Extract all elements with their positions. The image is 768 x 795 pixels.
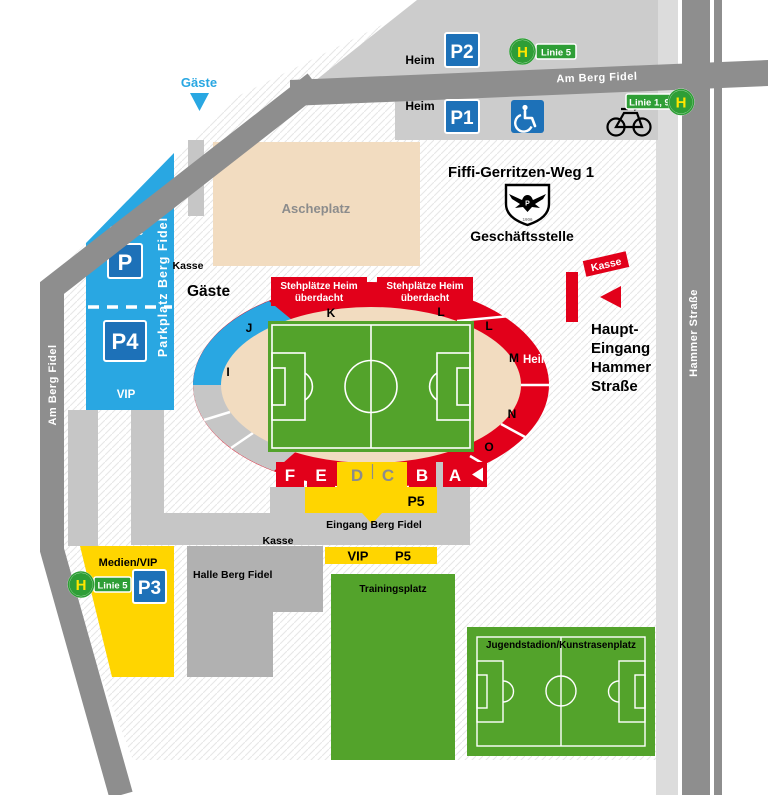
stand-apron-left	[270, 487, 305, 513]
main-entrance-line2: Eingang	[591, 340, 650, 357]
linie5-south-label: Linie 5	[97, 581, 128, 592]
hammer-strasse-lane	[714, 0, 722, 795]
block-f-label: F	[285, 466, 295, 485]
crest-letter: P	[525, 201, 530, 208]
guest-route-label: Gäste	[181, 75, 217, 90]
section-l-corner: L	[485, 319, 492, 333]
vip-p5-area: VIP P5	[325, 547, 437, 564]
h-stop-letter: H	[517, 44, 528, 61]
jugendstadion-label: Jugendstadion/Kunstrasenplatz	[486, 640, 636, 651]
section-n: N	[508, 407, 517, 421]
section-j: J	[246, 321, 253, 335]
block-b-label: B	[416, 466, 428, 485]
eingang-berg-fidel-label: Eingang Berg Fidel	[326, 519, 422, 531]
office-name-label: Geschäftsstelle	[470, 228, 574, 244]
hammer-strasse-label: Hammer Straße	[688, 289, 700, 377]
block-gap	[436, 462, 443, 487]
crest-year: 1906	[522, 217, 533, 222]
linie19-label: Linie 1, 9	[629, 98, 670, 109]
block-d-label: D	[351, 466, 363, 485]
terrace-label-line2: überdacht	[295, 293, 344, 304]
am-berg-fidel-label-west: Am Berg Fidel	[47, 344, 59, 425]
h-stop-letter: H	[676, 95, 687, 112]
kasse-west-label: Kasse	[173, 260, 204, 272]
parking-p1-sign-label: P1	[450, 108, 474, 129]
linie5-north-label: Linie 5	[541, 48, 572, 59]
p1-heim-label: Heim	[405, 99, 434, 113]
terrace-label-line1: Stehplätze Heim	[386, 281, 463, 292]
stadium-gaeste-label: Gäste	[187, 283, 230, 300]
parking-vip-label: VIP	[117, 389, 136, 401]
ring-heim-label: Heim	[523, 354, 551, 366]
west-corridor-b	[131, 410, 164, 545]
main-entrance-line4: Straße	[591, 378, 638, 395]
block-e-label: E	[315, 466, 326, 485]
north-terrace-east: Stehplätze Heim überdacht	[377, 277, 473, 306]
section-l-top: L	[437, 305, 444, 319]
parking-p4-sign-label: P4	[112, 329, 140, 354]
parking-p2-sign-label: P2	[450, 42, 473, 63]
stadium-area-map: Ascheplatz Halle Berg Fidel Gäste P P4 V…	[0, 0, 768, 795]
parking-p3-sign-label: P3	[138, 578, 161, 599]
ascheplatz-label: Ascheplatz	[282, 201, 351, 216]
vip-p5-vip-label: VIP	[348, 549, 369, 564]
p2-heim-label: Heim	[405, 53, 434, 67]
terrace-label-line2: überdacht	[401, 293, 450, 304]
p5-label: P5	[407, 493, 424, 509]
block-a-label: A	[449, 466, 461, 485]
kasse-south-label: Kasse	[263, 535, 294, 547]
parkplatz-berg-fidel-label: Parkplatz Berg Fidel	[156, 217, 170, 357]
main-entrance-line3: Hammer	[591, 359, 651, 376]
north-terrace-west: Stehplätze Heim überdacht	[271, 277, 367, 306]
sidewalk-strip	[656, 0, 678, 795]
hammer-strasse-road	[682, 0, 710, 795]
section-m: M	[509, 351, 519, 365]
section-o: O	[484, 440, 493, 454]
main-entrance-line1: Haupt-	[591, 321, 639, 338]
vip-p5-p5-label: P5	[395, 549, 411, 564]
south-access-road	[164, 513, 470, 545]
block-c-label: C	[382, 466, 394, 485]
trainingsplatz-field	[331, 574, 455, 760]
section-k: K	[327, 306, 336, 320]
office-address-label: Fiffi-Gerritzen-Weg 1	[448, 165, 594, 181]
section-i: I	[226, 365, 229, 379]
trainingsplatz-label: Trainingsplatz	[359, 584, 426, 595]
wheelchair-icon	[511, 100, 544, 133]
halle-berg-fidel-label: Halle Berg Fidel	[193, 569, 272, 581]
stand-apron-right	[437, 487, 470, 513]
jugendstadion-field: Jugendstadion/Kunstrasenplatz	[467, 627, 655, 756]
h-stop-letter: H	[76, 577, 87, 594]
vip-p5-box	[325, 547, 437, 564]
medien-vip-label: Medien/VIP	[99, 557, 158, 569]
west-corridor-a	[68, 410, 98, 546]
parking-p-sign-label: P	[118, 250, 133, 275]
terrace-label-line1: Stehplätze Heim	[280, 281, 357, 292]
main-entrance-wall	[566, 272, 578, 322]
